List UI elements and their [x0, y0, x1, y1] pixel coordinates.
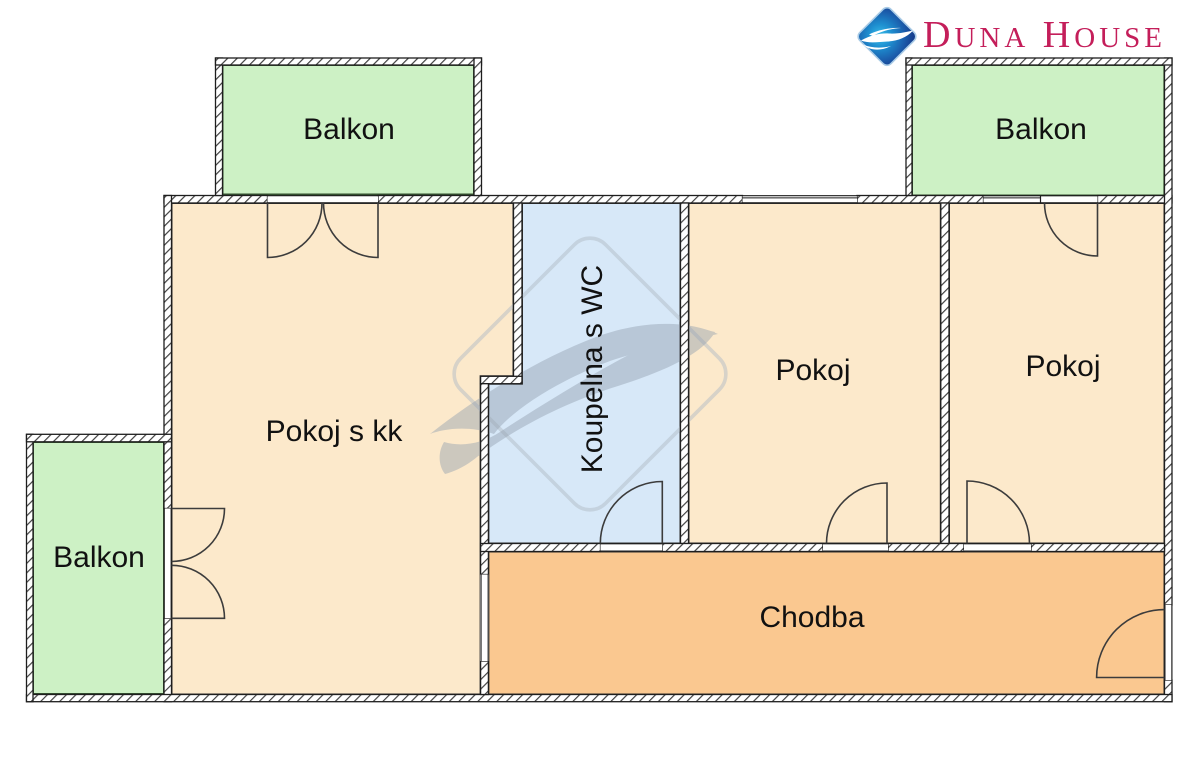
svg-text:Balkon: Balkon	[303, 113, 395, 146]
svg-text:Balkon: Balkon	[995, 113, 1087, 146]
svg-text:Pokoj s kk: Pokoj s kk	[266, 415, 404, 448]
svg-text:Pokoj: Pokoj	[775, 354, 850, 387]
svg-text:Pokoj: Pokoj	[1025, 350, 1100, 383]
svg-text:Balkon: Balkon	[53, 541, 145, 574]
svg-text:Chodba: Chodba	[759, 601, 864, 634]
svg-text:Koupelna s WC: Koupelna s WC	[576, 265, 609, 473]
